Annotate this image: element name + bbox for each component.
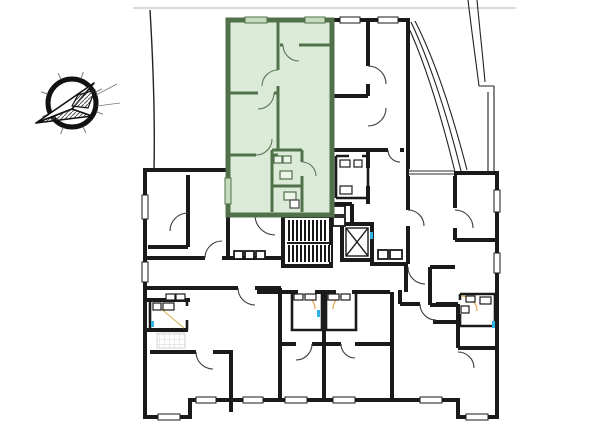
balcony-edge-lines bbox=[409, 169, 454, 176]
tiled-floor bbox=[157, 333, 185, 348]
site-curves-top-right bbox=[407, 0, 494, 172]
elevator-icon bbox=[342, 224, 372, 260]
north-arrow-compass-icon bbox=[36, 72, 120, 134]
staircase bbox=[283, 216, 331, 266]
highlighted-unit[interactable] bbox=[225, 17, 332, 215]
stair-flight-upper bbox=[287, 220, 327, 241]
stair-flight-lower bbox=[287, 245, 331, 262]
site-curve-left bbox=[150, 10, 154, 170]
compass-arrow bbox=[36, 83, 95, 123]
floorplan-canvas bbox=[0, 0, 600, 440]
floorplan-drawing bbox=[0, 0, 600, 440]
